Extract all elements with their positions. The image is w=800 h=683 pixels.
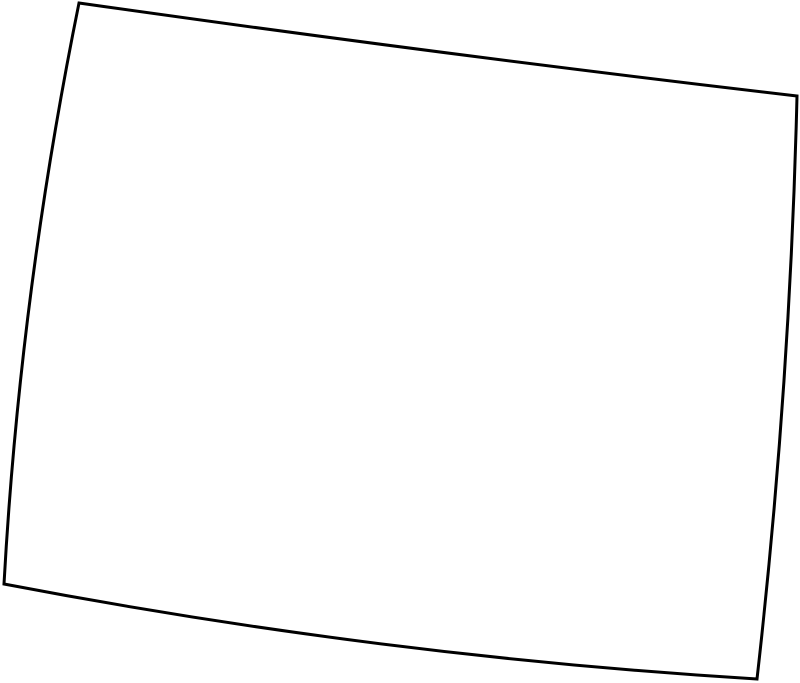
wyoming-state-outline-path <box>4 3 797 679</box>
blank-map-canvas <box>0 0 800 683</box>
state-outline-map <box>0 0 800 683</box>
